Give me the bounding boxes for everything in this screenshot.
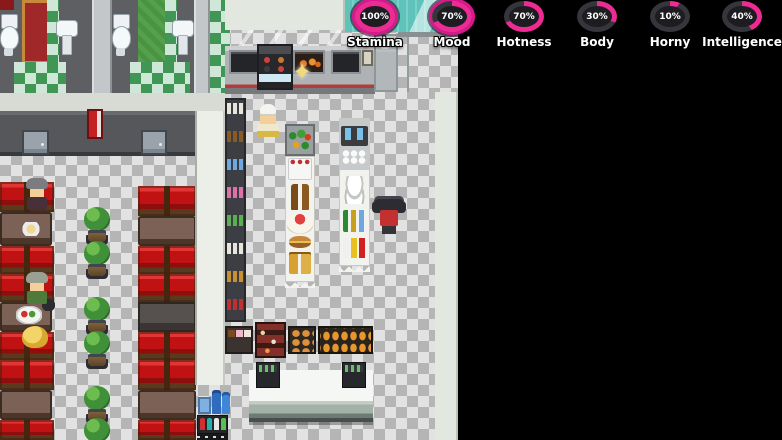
potted-plant: [84, 386, 110, 422]
carpet-corner: [0, 0, 14, 10]
potted-plant: [84, 331, 110, 367]
prep-table-left: [285, 156, 315, 282]
stamina-value: 100%: [361, 12, 389, 22]
bottle-shelf: [197, 415, 228, 434]
npc-body: [27, 291, 47, 304]
stat-body: 30% Body: [557, 1, 637, 49]
display-case-croissants: [288, 326, 316, 354]
bottle-teal: [207, 418, 212, 430]
shelf-jars: [227, 271, 244, 282]
plant-bush: [84, 241, 110, 265]
booth-seats: [138, 246, 196, 274]
shelf-cans: [227, 215, 244, 226]
prep-table-right: [339, 118, 370, 266]
plant-bush: [84, 386, 110, 410]
plate-stack: [343, 176, 366, 204]
stall-divider-wall: [194, 0, 210, 93]
potted-plant: [84, 207, 110, 243]
shelf-bottles: [227, 159, 244, 170]
hotness-gauge: 70%: [504, 1, 544, 32]
shelf-plates: [227, 243, 244, 254]
stat-intelligence: 40% Intelligence: [702, 1, 782, 49]
npc-diner-gray-hair[interactable]: [26, 178, 48, 210]
bottle-red: [200, 418, 205, 430]
npc-body: [257, 124, 279, 137]
toilet-base: [116, 48, 125, 56]
stamina-label: Stamina: [335, 35, 415, 49]
blue-jug: [222, 392, 230, 414]
food-plate: [20, 222, 42, 236]
npc-chef[interactable]: [256, 104, 280, 140]
dining-table: [0, 212, 52, 246]
display-case-sweets: [225, 326, 253, 354]
sink-pedestal: [62, 35, 72, 55]
coffee-machines: [341, 126, 368, 146]
storage-shelf: [225, 98, 246, 322]
plant-bush: [84, 207, 110, 231]
toilet-base: [4, 48, 13, 56]
booth-seats: [138, 420, 196, 440]
chef-hat-icon: [260, 104, 276, 116]
burner-icon: [278, 66, 284, 72]
horny-gauge: 10%: [650, 1, 690, 32]
burger: [289, 236, 311, 248]
bathroom-green-mat: [138, 0, 166, 62]
burner-icon: [264, 66, 270, 72]
tablecloth-fringe: [339, 266, 370, 272]
bottle-white: [214, 418, 219, 430]
cash-register[interactable]: [256, 362, 280, 388]
potted-plant: [84, 241, 110, 277]
cooking-range[interactable]: [259, 46, 291, 88]
dining-table: [138, 216, 196, 246]
shelf-cans: [227, 187, 244, 198]
plant-bush: [84, 297, 110, 321]
booth-seats: [0, 420, 54, 440]
npc-diner-blonde[interactable]: [22, 326, 48, 348]
black-panel: [458, 0, 782, 440]
tablecloth-fringe: [285, 282, 315, 288]
body-gauge: 30%: [577, 1, 617, 32]
fire-extinguisher-cabinet[interactable]: [87, 109, 103, 139]
npc-face: [260, 116, 276, 124]
body-label: Body: [557, 35, 637, 49]
cash-register[interactable]: [342, 362, 366, 388]
kitchen-right-wall: [435, 92, 458, 440]
register-buttons: [259, 365, 277, 372]
stat-mood: 70% Mood: [412, 1, 492, 49]
bottle-green: [221, 418, 226, 430]
plant-pot: [88, 264, 106, 276]
sushi-plate: [16, 306, 42, 324]
burner-icon: [264, 57, 270, 63]
burner-icon: [278, 57, 284, 63]
vegetable-crate: [285, 124, 315, 156]
drink-bottles: [343, 210, 366, 232]
blue-crates: [198, 390, 230, 416]
hotness-value: 70%: [513, 12, 535, 22]
npc-diner-green-jacket[interactable]: [26, 272, 48, 302]
booth-seats: [138, 360, 196, 390]
register-buttons: [345, 365, 363, 372]
dining-table: [0, 390, 52, 420]
sink[interactable]: [172, 20, 194, 62]
dining-table: [138, 390, 196, 420]
potted-plant: [84, 418, 110, 440]
gauge-center: 70%: [509, 6, 539, 27]
body-value: 30%: [586, 12, 608, 22]
intelligence-label: Intelligence: [702, 35, 782, 49]
door[interactable]: [141, 130, 167, 155]
corridor-floor: [0, 93, 230, 111]
wine-bottles: [291, 184, 309, 210]
oven-window: [333, 52, 359, 72]
npc-hair: [26, 272, 48, 283]
plant-bush: [84, 331, 110, 355]
toilet[interactable]: [0, 14, 18, 58]
booth-seats: [138, 274, 196, 302]
divider-wall: [195, 111, 225, 385]
display-case-donuts: [318, 326, 373, 354]
door[interactable]: [22, 130, 49, 155]
shelf-bottles: [227, 299, 244, 310]
toilet[interactable]: [112, 14, 130, 58]
npc-body: [380, 210, 398, 226]
mood-value: 70%: [441, 12, 463, 22]
intelligence-gauge: 40%: [722, 1, 762, 32]
control-panel: [362, 50, 373, 66]
booth-seats: [138, 332, 196, 360]
hotness-label: Hotness: [484, 35, 564, 49]
shelf-base: [197, 434, 228, 440]
gauge-center: 10%: [655, 6, 685, 27]
gauge-center: 40%: [727, 6, 757, 27]
stat-hotness: 70% Hotness: [484, 1, 564, 49]
mood-gauge: 70%: [432, 1, 472, 32]
kitchen-top-wall: [225, 0, 345, 30]
stamina-gauge: 100%: [355, 1, 395, 32]
horny-label: Horny: [630, 35, 710, 49]
cake: [287, 214, 313, 234]
sink-pedestal: [178, 35, 188, 55]
jam-jars: [289, 252, 311, 274]
sweet-pink: [236, 330, 243, 337]
stat-horny: 10% Horny: [630, 1, 710, 49]
door-handle-icon: [41, 143, 44, 146]
plant-pot: [88, 354, 106, 366]
gauge-center: 100%: [360, 6, 390, 27]
npc-face: [30, 189, 44, 197]
bathroom-tile-patch: [14, 62, 66, 93]
npc-porter[interactable]: [374, 196, 404, 234]
mood-label: Mood: [412, 35, 492, 49]
shelf-plates: [227, 103, 244, 114]
gauge-center: 30%: [582, 6, 612, 27]
blue-cube: [198, 397, 211, 414]
potted-plant: [84, 297, 110, 333]
display-case-deli: [255, 322, 286, 358]
cooking-pot-icon: [374, 196, 404, 210]
bathroom-tile-patch: [130, 62, 190, 93]
gauge-center: 70%: [437, 6, 467, 27]
stat-stamina: 100% Stamina: [335, 1, 415, 49]
toilet-bowl: [112, 26, 131, 50]
sweet-cream: [244, 330, 251, 337]
game-screen: ✦: [0, 0, 782, 440]
booth-seats: [0, 246, 54, 274]
horny-value: 10%: [659, 12, 681, 22]
sink[interactable]: [56, 20, 78, 62]
toilet-bowl: [0, 26, 19, 50]
sweet-brown: [228, 330, 235, 337]
booth-seats: [0, 360, 54, 390]
condiment-bottles: [343, 238, 366, 258]
booth-seats: [138, 186, 196, 216]
npc-body: [27, 197, 47, 210]
blue-jug: [212, 390, 221, 414]
plant-bush: [84, 418, 110, 440]
sparkle-icon: ✦: [292, 60, 318, 86]
npc-legs: [382, 226, 396, 234]
stall-divider-wall: [92, 0, 112, 93]
door-handle-icon: [159, 143, 162, 146]
npc-face: [30, 283, 44, 291]
oven-window: [231, 52, 257, 72]
dining-table: [138, 302, 196, 332]
cups: [342, 150, 367, 164]
npc-hair: [26, 178, 48, 189]
intelligence-value: 40%: [731, 12, 753, 22]
milk-bottles: [288, 158, 312, 180]
shelf-bottles: [227, 131, 244, 142]
